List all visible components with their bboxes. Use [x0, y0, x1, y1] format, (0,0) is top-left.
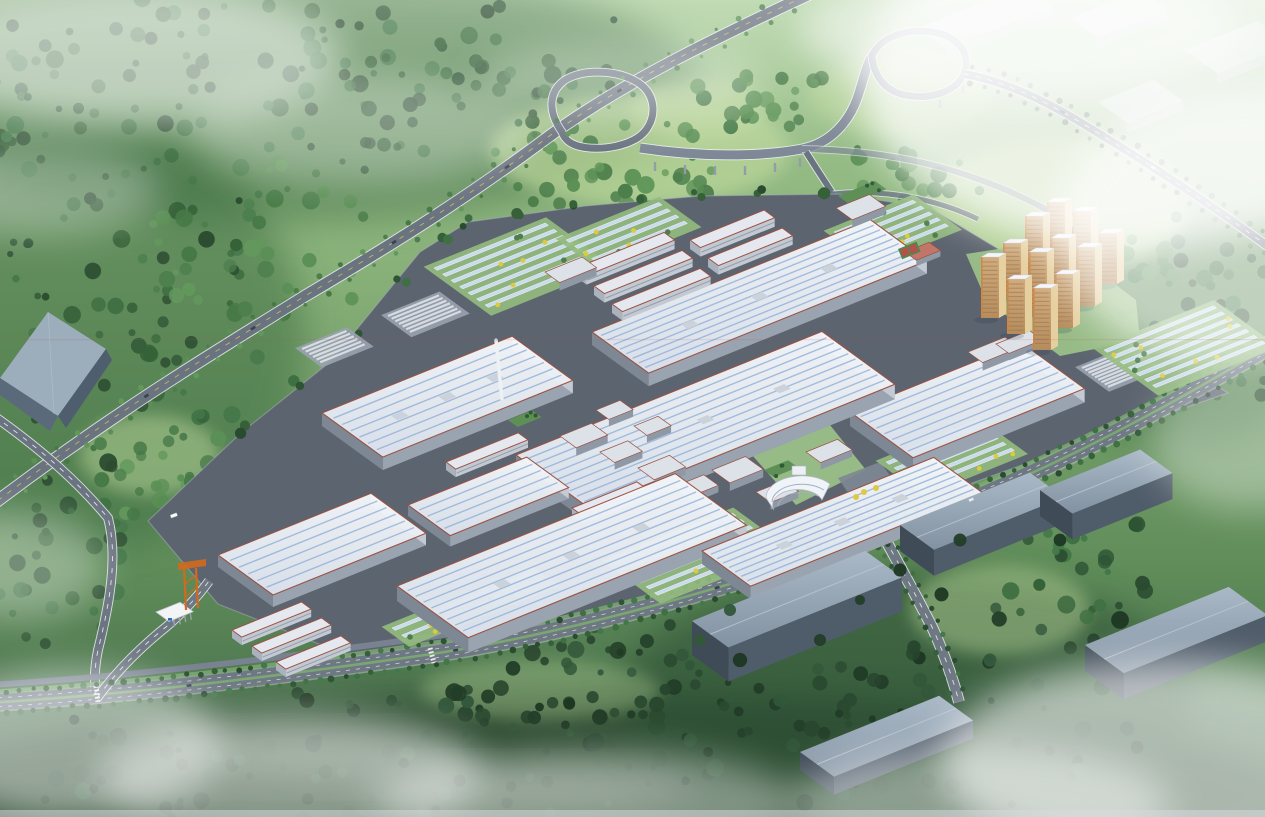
yellow-tree [977, 466, 982, 471]
street-tree [237, 343, 242, 348]
tree-canopy [595, 162, 605, 172]
yellow-tree [511, 283, 516, 288]
tree-canopy [96, 331, 104, 339]
tree-canopy [605, 646, 612, 653]
fence-tree [235, 428, 246, 439]
fence-tree [443, 235, 453, 245]
fence-tree [393, 275, 400, 282]
tree-canopy [153, 286, 160, 293]
street-tree [1057, 444, 1062, 449]
street-tree [294, 288, 300, 294]
tree-canopy [843, 711, 851, 719]
tree-canopy [345, 700, 354, 709]
tree-canopy [812, 663, 824, 675]
tree-canopy [302, 253, 316, 267]
tree-canopy [135, 487, 144, 496]
tree-canopy [42, 293, 50, 301]
gate-column [174, 620, 175, 627]
tree-canopy [733, 653, 747, 667]
tree-canopy [921, 684, 936, 699]
tree-canopy [106, 461, 118, 473]
street-tree [351, 653, 356, 658]
green-tree [1141, 351, 1147, 357]
tree-canopy [1105, 569, 1111, 575]
gate-column [190, 613, 191, 620]
tree-canopy [563, 698, 575, 710]
street-tree [368, 670, 373, 675]
street-tree [561, 638, 567, 644]
street-tree [896, 545, 901, 550]
street-tree [390, 648, 395, 653]
tree-canopy [23, 240, 31, 248]
tree-canopy [345, 292, 358, 305]
tree-canopy [244, 199, 255, 210]
tree-canopy [395, 701, 402, 708]
tree-canopy [724, 604, 736, 616]
tree-canopy [510, 723, 517, 730]
street-tree [317, 677, 323, 683]
street-tree [1034, 457, 1039, 462]
tree-canopy [1135, 576, 1150, 591]
street-tree [290, 681, 296, 687]
tree-canopy [1098, 555, 1112, 569]
street-tree [598, 628, 604, 634]
street-tree [573, 634, 578, 639]
industrial-park-aerial-rendering [0, 0, 1265, 817]
street-tree [185, 357, 189, 361]
tree-canopy [149, 220, 157, 228]
fence-tree [460, 223, 467, 230]
fence-tree [569, 200, 577, 208]
street-tree [1113, 441, 1120, 448]
street-tree [933, 650, 939, 656]
street-tree [258, 331, 264, 337]
tree-canopy [640, 634, 654, 648]
tree-canopy [1075, 562, 1089, 576]
tree-canopy [237, 301, 252, 316]
street-tree [281, 318, 285, 322]
street-tree [524, 164, 528, 168]
tree-canopy [540, 657, 549, 666]
tower-side [999, 253, 1006, 318]
courtyard-tree [525, 414, 529, 418]
tree-canopy [1002, 582, 1019, 599]
street-tree [1056, 470, 1062, 476]
street-tree [24, 489, 28, 493]
fence-tree [757, 185, 766, 194]
tree-canopy [845, 721, 852, 728]
street-tree [427, 207, 433, 213]
street-tree [1135, 430, 1142, 437]
green-tree [1132, 367, 1138, 373]
tree-canopy [744, 727, 753, 736]
street-tree [661, 609, 668, 616]
street-tree [712, 596, 718, 602]
street-tree [623, 620, 628, 625]
street-tree [936, 619, 940, 623]
tree-canopy [224, 259, 237, 272]
tree-canopy [690, 679, 701, 690]
tower-side [1025, 275, 1032, 334]
street-tree [1042, 475, 1048, 481]
tree-canopy [1016, 608, 1024, 616]
tree-canopy [636, 649, 643, 656]
street-tree [160, 372, 165, 377]
street-tree [201, 691, 207, 697]
tree-canopy [91, 297, 106, 312]
street-tree [923, 625, 929, 631]
street-tree [580, 610, 586, 616]
tree-canopy [481, 690, 495, 704]
yellow-tree [542, 240, 547, 245]
tree-canopy [158, 316, 169, 327]
tree-canopy [754, 683, 765, 694]
tree-canopy [685, 660, 695, 670]
tree-canopy [179, 433, 187, 441]
tree-canopy [547, 697, 558, 708]
street-tree [261, 662, 267, 668]
scanline-artifact [0, 339, 1265, 340]
street-tree [31, 458, 37, 464]
tree-canopy [155, 210, 170, 225]
street-tree [382, 669, 386, 673]
tree-canopy [458, 706, 474, 722]
street-tree [1046, 450, 1051, 455]
street-tree [987, 476, 993, 482]
street-tree [889, 564, 894, 569]
tree-canopy [598, 669, 604, 675]
tree-canopy [34, 293, 41, 300]
street-tree [1023, 462, 1028, 467]
fence-tree [697, 193, 705, 201]
yellow-tree [584, 251, 589, 256]
street-tree [434, 662, 439, 667]
tree-canopy [528, 196, 539, 207]
tower-accent [1033, 288, 1035, 350]
tree-canopy [257, 261, 274, 278]
street-tree [924, 594, 928, 598]
courtyard-tree [877, 188, 881, 192]
street-tree [328, 676, 335, 683]
tree-canopy [94, 437, 107, 450]
tree-canopy [566, 729, 574, 737]
street-tree [236, 667, 242, 673]
street-tree [903, 589, 908, 594]
tree-canopy [694, 634, 706, 646]
street-tree [548, 640, 554, 646]
street-tree [947, 691, 953, 697]
tree-canopy [513, 182, 522, 191]
tree-canopy [169, 425, 179, 435]
street-tree [619, 599, 625, 605]
tree-canopy [719, 701, 729, 711]
tree-canopy [155, 479, 170, 494]
tree-canopy [843, 693, 857, 707]
yellow-tree [594, 230, 599, 235]
tree-canopy [10, 239, 17, 246]
street-tree [956, 671, 961, 676]
street-tree [429, 640, 433, 644]
tree-canopy [954, 534, 967, 547]
street-tree [941, 676, 946, 681]
tree-canopy [521, 711, 534, 724]
tree-canopy [89, 606, 98, 615]
street-tree [523, 644, 529, 650]
street-tree [612, 624, 619, 631]
street-tree [593, 607, 599, 613]
street-tree [13, 474, 17, 478]
street-tree [1139, 404, 1145, 410]
tree-canopy [171, 355, 182, 366]
fence-tree [296, 382, 305, 391]
street-tree [138, 385, 144, 391]
street-tree [1078, 459, 1084, 465]
street-tree [480, 194, 484, 198]
tree-canopy [676, 649, 689, 662]
tree-canopy [107, 298, 123, 314]
yellow-tree [1111, 353, 1116, 358]
street-tree [631, 597, 637, 603]
tree-canopy [1080, 610, 1095, 625]
tree-canopy [935, 587, 949, 601]
tree-canopy [1057, 596, 1075, 614]
street-tree [251, 315, 255, 319]
yellow-tree [520, 258, 525, 263]
tree-canopy [1111, 611, 1129, 629]
viaduct-pier [774, 163, 776, 172]
tree-canopy [992, 611, 1007, 626]
tree-canopy [250, 350, 265, 365]
yellow-tree [495, 302, 500, 307]
street-tree [198, 672, 204, 678]
tree-canopy [835, 710, 843, 718]
tree-canopy [587, 691, 599, 703]
tree-canopy [677, 695, 685, 703]
street-tree [316, 273, 322, 279]
tree-canopy [114, 469, 126, 481]
tree-canopy [21, 632, 31, 642]
cloud-haze [180, 737, 480, 777]
street-tree [726, 592, 731, 597]
street-tree [444, 659, 450, 665]
fence-tree [511, 208, 522, 219]
tree-canopy [160, 357, 170, 367]
street-tree [637, 616, 643, 622]
tree-canopy [586, 733, 604, 751]
street-tree [960, 686, 965, 691]
street-tree [676, 607, 682, 613]
tree-canopy [567, 641, 584, 658]
viaduct-pier [714, 166, 716, 175]
tree-canopy [1054, 534, 1067, 547]
tree-canopy [451, 685, 467, 701]
tree-canopy [893, 563, 906, 576]
street-tree [458, 658, 462, 662]
tree-canopy [140, 345, 158, 363]
tree-canopy [185, 336, 198, 349]
tree-canopy [223, 406, 240, 423]
street-tree [118, 398, 124, 404]
street-tree [882, 554, 887, 559]
tree-canopy [7, 251, 13, 257]
tree-canopy [236, 197, 243, 204]
tree-canopy [85, 263, 102, 280]
tree-canopy [638, 710, 647, 719]
tree-canopy [358, 211, 368, 221]
yellow-tree [905, 234, 910, 239]
street-tree [253, 687, 258, 692]
tree-canopy [812, 676, 827, 691]
street-tree [64, 459, 69, 464]
tree-canopy [855, 595, 865, 605]
street-tree [128, 415, 133, 420]
street-tree [441, 638, 447, 644]
yellow-tree [994, 454, 999, 459]
street-tree [459, 206, 464, 211]
street-tree [1080, 435, 1086, 441]
tree-canopy [553, 197, 566, 210]
tree-canopy [734, 707, 744, 717]
tree-canopy [157, 251, 170, 264]
street-tree [1000, 472, 1006, 478]
viaduct-pier [744, 166, 746, 175]
street-tree [344, 674, 349, 679]
tree-canopy [561, 721, 570, 730]
street-tree [159, 676, 164, 681]
tree-canopy [230, 239, 242, 251]
street-tree [365, 651, 371, 657]
fence-tree [636, 195, 644, 203]
tree-canopy [983, 653, 996, 666]
street-tree [447, 192, 452, 197]
street-tree [420, 664, 425, 669]
street-tree [607, 602, 613, 608]
tree-canopy [202, 221, 209, 228]
tree-canopy [592, 709, 608, 725]
tree-canopy [282, 283, 293, 294]
tree-canopy [664, 619, 676, 631]
street-tree [700, 601, 705, 606]
street-tree [916, 583, 921, 588]
tree-canopy [180, 263, 192, 275]
gate-logo [168, 618, 172, 621]
street-tree [1092, 427, 1098, 433]
tree-canopy [63, 306, 81, 324]
tree-canopy [154, 238, 163, 247]
tree-canopy [480, 718, 489, 727]
tree-canopy [535, 703, 544, 712]
tree-canopy [133, 442, 147, 456]
street-tree [952, 658, 957, 663]
street-tree [326, 291, 332, 297]
tree-canopy [869, 715, 876, 722]
gate-column [179, 617, 180, 624]
street-tree [226, 688, 233, 695]
tree-canopy [703, 747, 713, 757]
street-tree [415, 237, 421, 243]
fence-tree [402, 278, 411, 287]
tree-canopy [627, 667, 637, 677]
tree-canopy [138, 254, 148, 264]
tower-accent [981, 257, 983, 318]
street-tree [557, 617, 563, 623]
street-tree [304, 303, 308, 307]
tree-canopy [814, 634, 826, 646]
street-tree [473, 656, 478, 661]
tree-canopy [673, 168, 690, 185]
street-tree [1147, 422, 1153, 428]
street-tree [55, 446, 59, 450]
street-tree [1066, 464, 1073, 471]
tree-canopy [660, 684, 671, 695]
street-tree [97, 416, 100, 419]
tree-canopy [649, 697, 664, 712]
street-tree [436, 222, 441, 227]
tree-canopy [773, 693, 787, 707]
car [186, 684, 191, 687]
tree-canopy [561, 658, 572, 669]
street-tree [1125, 435, 1131, 441]
tree-canopy [182, 246, 198, 262]
tree-canopy [177, 474, 184, 481]
street-tree [1100, 446, 1107, 453]
tree-canopy [127, 508, 140, 521]
street-tree [212, 668, 218, 674]
courtyard-tree [529, 411, 533, 415]
street-tree [940, 632, 945, 637]
tree-canopy [159, 271, 175, 287]
tree-canopy [786, 739, 800, 753]
tree-canopy [684, 733, 697, 746]
street-tree [383, 235, 388, 240]
viaduct-pier [684, 165, 686, 174]
tree-canopy [182, 283, 195, 296]
tower-accent [1007, 279, 1009, 334]
street-tree [1088, 453, 1095, 460]
green-tree [561, 257, 567, 263]
tree-canopy [68, 508, 75, 515]
tree-canopy [151, 334, 160, 343]
street-tree [173, 388, 178, 393]
tree-canopy [610, 708, 620, 718]
tree-canopy [906, 647, 920, 661]
street-tree [184, 671, 189, 676]
tree-canopy [193, 295, 203, 305]
green-tree [1135, 357, 1141, 363]
street-tree [484, 654, 489, 659]
tree-canopy [252, 216, 266, 230]
tree-canopy [40, 638, 51, 649]
tree-canopy [12, 275, 19, 282]
tree-canopy [158, 451, 167, 460]
street-tree [929, 606, 934, 611]
tree-canopy [169, 288, 184, 303]
tree-canopy [462, 732, 469, 739]
yellow-tree [861, 489, 867, 495]
tree-canopy [1052, 547, 1060, 555]
tree-canopy [867, 673, 881, 687]
street-tree [303, 679, 308, 684]
tree-canopy [198, 231, 215, 248]
street-tree [338, 262, 343, 267]
yellow-tree [694, 569, 699, 574]
tree-canopy [1064, 641, 1077, 654]
yellow-tree [873, 485, 879, 491]
tree-canopy [255, 190, 263, 198]
street-tree [216, 357, 220, 361]
tree-canopy [129, 329, 136, 336]
tree-canopy [227, 250, 234, 257]
